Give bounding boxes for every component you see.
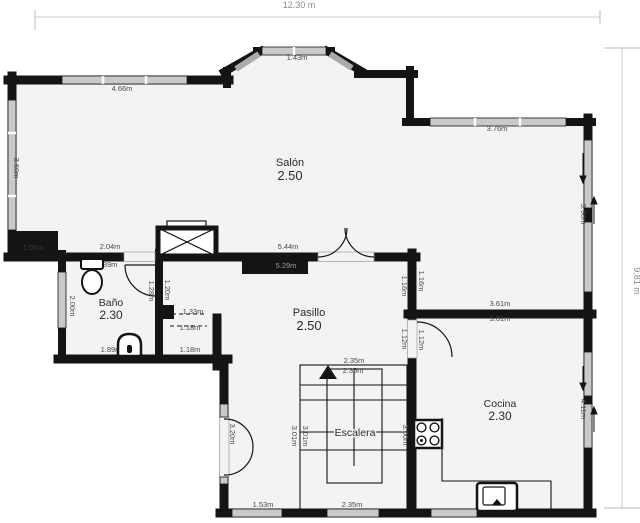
dim-divider-bottom: 3.61m — [490, 314, 511, 323]
stove — [414, 420, 442, 448]
overall-width-label: 12.30 m — [283, 0, 316, 10]
bottom-window-a — [232, 509, 282, 517]
bottom-window-b — [327, 509, 379, 517]
dim-salon-right-window: 3.90m — [579, 204, 588, 225]
dim-pasillo-wall-right: 1.16m — [417, 271, 426, 292]
dim-cocina-door-left: 1.12m — [400, 329, 409, 350]
dim-black-box: 5.29m — [276, 261, 297, 270]
salon-right-window-b — [584, 222, 592, 292]
salon-top-window — [62, 76, 187, 84]
bathroom-sink-faucet — [127, 345, 132, 353]
toilet — [81, 259, 103, 294]
dim-stair-top-outer: 2.35m — [344, 356, 365, 365]
salon-right-window-a — [584, 140, 592, 208]
room-label-escalera: Escalera — [335, 427, 376, 439]
cocina-right-window-a — [584, 352, 592, 396]
bottom-window-c — [431, 509, 477, 517]
dim-salon-left-window: 3.60m — [12, 158, 21, 179]
dim-salon-top-window: 4.66m — [112, 84, 133, 93]
bano-left-window — [58, 272, 66, 328]
dim-bottom-strip: 1.53m — [253, 500, 274, 509]
dim-stair-right: 3.00m — [401, 425, 410, 446]
dim-pasillo-wall-left: 1.16m — [400, 276, 409, 297]
dim-lower-left-door: 3.20m — [228, 424, 237, 445]
room-value-salon: 2.50 — [277, 168, 302, 183]
dim-bay-window: 1.43m — [287, 53, 308, 62]
french-door-opening — [220, 417, 230, 477]
lowerleft-window-b — [220, 477, 228, 484]
stove-knob — [420, 439, 423, 442]
closet-wall-stub — [160, 305, 174, 319]
dim-salon-bottom-right: 5.44m — [278, 242, 299, 251]
bano-door-opening — [124, 252, 155, 262]
dim-divider-top: 3.61m — [490, 299, 511, 308]
dim-stair-top-inner: 2.35m — [343, 366, 364, 375]
room-value-bano: 2.30 — [99, 308, 123, 322]
dim-stair-left-outer: 3.01m — [290, 426, 299, 447]
dim-bano-door-left: 1.28m — [147, 281, 156, 302]
dim-topright-window: 3.76m — [487, 124, 508, 133]
dim-corner-mass: 1.05m — [23, 243, 44, 252]
fireplace — [158, 221, 216, 256]
dim-closet-bottom: 1.18m — [180, 345, 201, 354]
kitchen-sink — [477, 483, 517, 511]
dim-cocina-right-window: 4.11m — [579, 399, 588, 419]
dim-stair-bottom: 2.35m — [342, 500, 363, 509]
dim-stair-left-inner: 3.01m — [301, 426, 310, 447]
floor-plan: 12.30 m 4.66m 1.43m 3.76m 2.04m 5.44m 1.… — [0, 0, 640, 523]
floor-plan-canvas: 12.30 m 4.66m 1.43m 3.76m 2.04m 5.44m 1.… — [0, 0, 640, 523]
dim-cocina-door-right: 1.12m — [417, 330, 426, 351]
dim-bano-door-right: 1.20m — [163, 280, 172, 301]
lowerleft-window-a — [220, 404, 228, 417]
salon-door-opening — [318, 252, 374, 262]
dim-closet-mid: 1.18m — [180, 323, 201, 332]
room-value-cocina: 2.30 — [488, 409, 512, 423]
room-value-pasillo: 2.50 — [296, 318, 321, 333]
dim-salon-bottom-left: 2.04m — [100, 242, 121, 251]
dim-closet-top: 1.33m — [183, 307, 204, 316]
dim-bano-left: 2.00m — [68, 296, 77, 317]
overall-height-label: 9.81 m — [632, 267, 640, 295]
bathroom-sink — [118, 334, 141, 356]
